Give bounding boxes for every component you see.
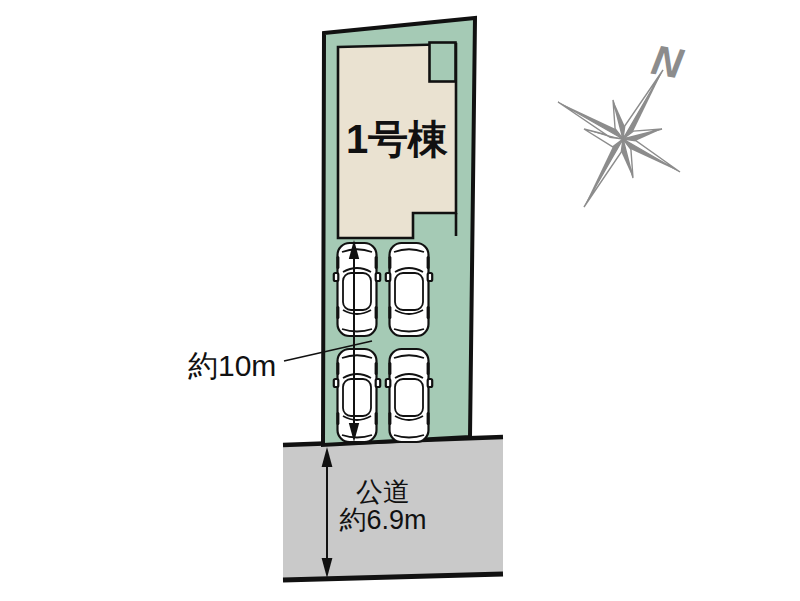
road-type-label: 公道 <box>316 478 450 506</box>
car-icon <box>386 243 432 336</box>
road-width-label: 約6.9m <box>316 506 450 534</box>
road-label: 公道 約6.9m <box>316 478 450 534</box>
site-plan-canvas: 1号棟 約10m 公道 約6.9m N <box>0 0 800 601</box>
compass-rose-icon <box>558 70 680 207</box>
car-icon <box>386 349 432 442</box>
building-entry-notch <box>430 43 456 82</box>
depth-measure-label: 約10m <box>188 346 276 387</box>
building-label: 1号棟 <box>336 112 458 167</box>
